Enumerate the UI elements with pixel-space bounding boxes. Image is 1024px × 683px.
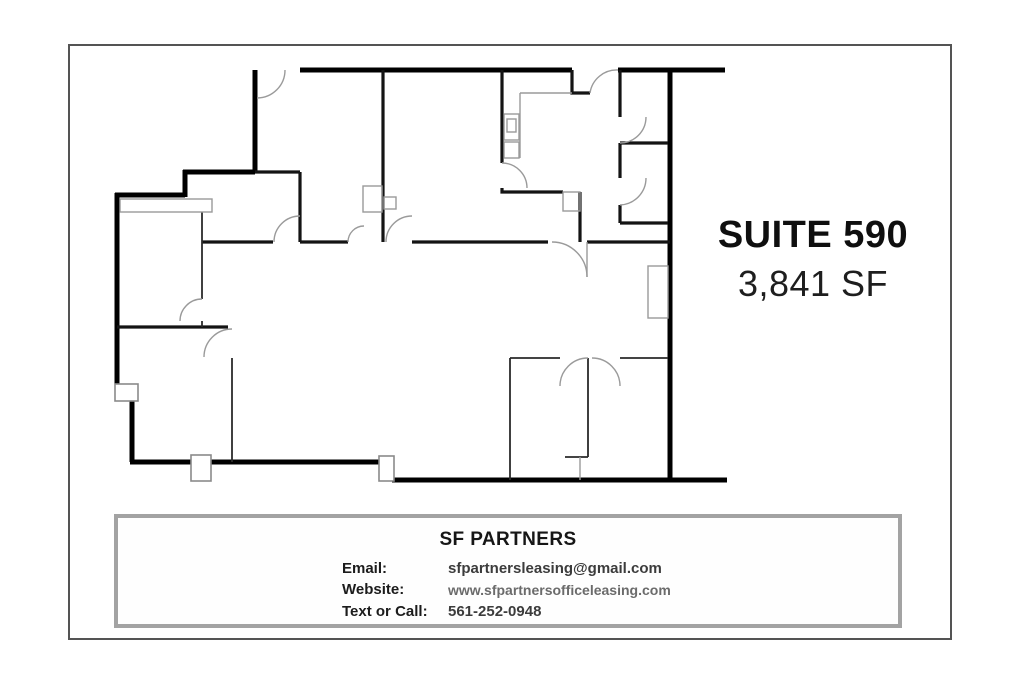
suite-area: 3,841 SF (688, 263, 938, 305)
phone-label: Text or Call: (342, 601, 448, 622)
exterior-walls (115, 68, 727, 482)
door-arcs (180, 70, 646, 480)
suite-label-block: SUITE 590 3,841 SF (688, 216, 938, 305)
contact-row-website: Website: www.sfpartnersofficeleasing.com (342, 579, 898, 601)
email-value: sfpartnersleasing@gmail.com (448, 558, 662, 579)
contact-box: SF PARTNERS Email: sfpartnersleasing@gma… (114, 514, 902, 628)
phone-value: 561-252-0948 (448, 601, 541, 622)
company-name: SF PARTNERS (118, 529, 898, 551)
email-label: Email: (342, 558, 448, 579)
contact-row-phone: Text or Call: 561-252-0948 (342, 601, 898, 622)
contact-rows: Email: sfpartnersleasing@gmail.com Websi… (342, 558, 898, 622)
columns (115, 384, 394, 481)
suite-title: SUITE 590 (688, 216, 938, 256)
website-value: www.sfpartnersofficeleasing.com (448, 579, 671, 601)
contact-row-email: Email: sfpartnersleasing@gmail.com (342, 558, 898, 579)
website-label: Website: (342, 579, 448, 601)
